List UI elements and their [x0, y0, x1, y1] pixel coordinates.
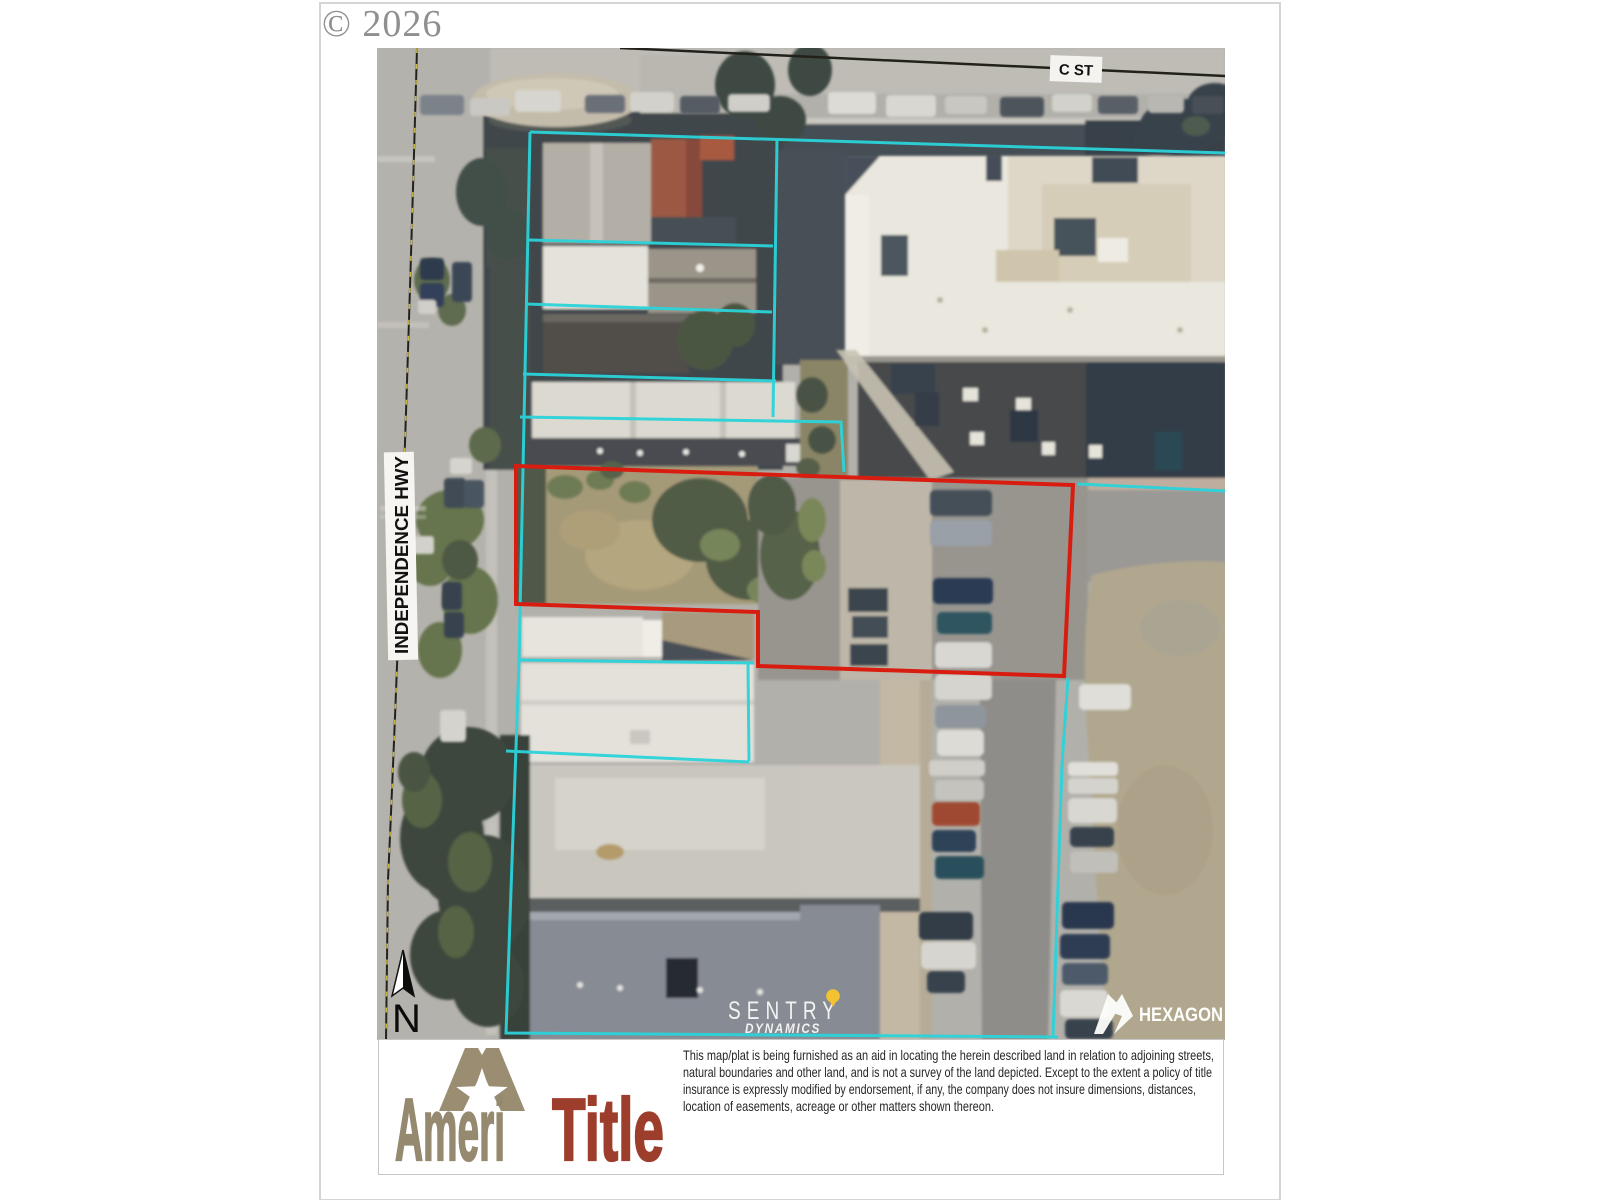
svg-text:N: N [392, 997, 421, 1040]
svg-text:DYNAMICS: DYNAMICS [745, 1020, 821, 1036]
svg-text:HEXAGON: HEXAGON [1139, 1005, 1223, 1026]
svg-text:insurance is expressly modifie: insurance is expressly modified by endor… [683, 1082, 1196, 1097]
svg-text:Ameri: Ameri [395, 1080, 505, 1174]
svg-text:Title: Title [552, 1080, 664, 1174]
svg-text:C ST: C ST [1059, 61, 1094, 79]
svg-text:natural boundaries and other l: natural boundaries and other land, and i… [683, 1065, 1212, 1080]
svg-text:location of easements, acreage: location of easements, acreage or other … [683, 1099, 994, 1114]
svg-text:This map/plat is being furnish: This map/plat is being furnished as an a… [683, 1048, 1214, 1063]
svg-text:INDEPENDENCE HWY: INDEPENDENCE HWY [392, 456, 412, 654]
